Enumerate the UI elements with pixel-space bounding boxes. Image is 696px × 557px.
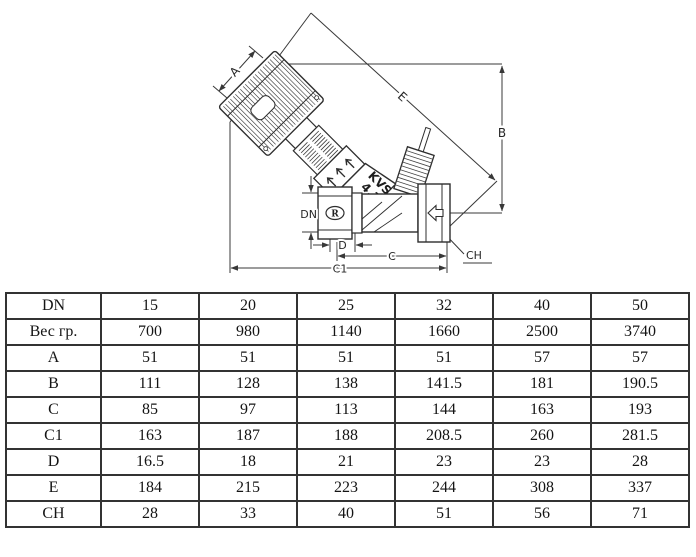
- drain-valve-stem: [418, 127, 430, 151]
- dim-label-dn: DN: [300, 208, 317, 221]
- table-cell: 208.5: [395, 423, 493, 449]
- table-cell: 51: [395, 501, 493, 527]
- table-cell: 215: [199, 475, 297, 501]
- table-cell: 144: [395, 397, 493, 423]
- table-row-e: E 184 215 223 244 308 337: [6, 475, 689, 501]
- table-cell: 260: [493, 423, 591, 449]
- table-cell: 1140: [297, 319, 395, 345]
- table-cell: 97: [199, 397, 297, 423]
- dimensions-table: DN 15 20 25 32 40 50 Вес гр. 700 980 114…: [5, 292, 690, 528]
- table-cell: 2500: [493, 319, 591, 345]
- table-row-c: C 85 97 113 144 163 193: [6, 397, 689, 423]
- table-cell: 40: [493, 293, 591, 319]
- row-label: C1: [6, 423, 101, 449]
- dim-label-a: A: [227, 63, 243, 79]
- row-label: Вес гр.: [6, 319, 101, 345]
- table-cell: 308: [493, 475, 591, 501]
- table-cell: 28: [591, 449, 689, 475]
- table-row-a: A 51 51 51 51 57 57: [6, 345, 689, 371]
- table-cell: 113: [297, 397, 395, 423]
- table-cell: 21: [297, 449, 395, 475]
- table-cell: 28: [101, 501, 199, 527]
- valve-technical-drawing: KVS 4,1 R A: [0, 0, 696, 292]
- row-label: B: [6, 371, 101, 397]
- brand-logo-letter: R: [331, 210, 339, 220]
- page: KVS 4,1 R A: [0, 0, 696, 557]
- table-cell: 25: [297, 293, 395, 319]
- table-cell: 56: [493, 501, 591, 527]
- table-cell: 193: [591, 397, 689, 423]
- table-cell: 1660: [395, 319, 493, 345]
- table-cell: 33: [199, 501, 297, 527]
- table-row-d: D 16.5 18 21 23 23 28: [6, 449, 689, 475]
- table-cell: 23: [493, 449, 591, 475]
- table-cell: 15: [101, 293, 199, 319]
- table-cell: 51: [297, 345, 395, 371]
- row-label: DN: [6, 293, 101, 319]
- table-cell: 18: [199, 449, 297, 475]
- table-cell: 184: [101, 475, 199, 501]
- dim-a-tick-1: [249, 46, 263, 58]
- table-cell: 57: [493, 345, 591, 371]
- table-cell: 190.5: [591, 371, 689, 397]
- table-cell: 40: [297, 501, 395, 527]
- row-label: A: [6, 345, 101, 371]
- table-cell: 163: [101, 423, 199, 449]
- dim-label-b: B: [498, 126, 506, 140]
- dim-label-d: D: [338, 239, 346, 252]
- table-row-b: B 111 128 138 141.5 181 190.5: [6, 371, 689, 397]
- row-label: CH: [6, 501, 101, 527]
- dim-rect-bottom-right-side: [448, 181, 497, 228]
- table-cell: 188: [297, 423, 395, 449]
- row-label: E: [6, 475, 101, 501]
- table-cell: 163: [493, 397, 591, 423]
- left-port-ring: [352, 193, 362, 233]
- table-cell: 223: [297, 475, 395, 501]
- dim-label-c1: C1: [333, 263, 348, 276]
- body-center: [362, 194, 418, 232]
- table-cell: 980: [199, 319, 297, 345]
- table-cell: 111: [101, 371, 199, 397]
- table-cell: 51: [199, 345, 297, 371]
- table-cell: 71: [591, 501, 689, 527]
- dim-label-c: C: [388, 250, 396, 263]
- table-cell: 700: [101, 319, 199, 345]
- table-cell: 3740: [591, 319, 689, 345]
- table-cell: 181: [493, 371, 591, 397]
- table-cell: 141.5: [395, 371, 493, 397]
- table-row-c1: C1 163 187 188 208.5 260 281.5: [6, 423, 689, 449]
- table-cell: 244: [395, 475, 493, 501]
- table-cell: 337: [591, 475, 689, 501]
- table-cell: 281.5: [591, 423, 689, 449]
- table-cell: 128: [199, 371, 297, 397]
- dim-a-tick-2: [213, 86, 227, 98]
- table-cell: 57: [591, 345, 689, 371]
- table-row-ch: CH 28 33 40 51 56 71: [6, 501, 689, 527]
- table-cell: 51: [395, 345, 493, 371]
- table-cell: 187: [199, 423, 297, 449]
- table-cell: 85: [101, 397, 199, 423]
- dim-label-ch: CH: [466, 249, 482, 262]
- table-row-weight: Вес гр. 700 980 1140 1660 2500 3740: [6, 319, 689, 345]
- table-cell: 51: [101, 345, 199, 371]
- dimensions-table-wrap: DN 15 20 25 32 40 50 Вес гр. 700 980 114…: [5, 292, 690, 528]
- table-cell: 23: [395, 449, 493, 475]
- table-cell: 138: [297, 371, 395, 397]
- row-label: D: [6, 449, 101, 475]
- table-cell: 32: [395, 293, 493, 319]
- table-cell: 20: [199, 293, 297, 319]
- table-row-dn: DN 15 20 25 32 40 50: [6, 293, 689, 319]
- table-cell: 16.5: [101, 449, 199, 475]
- table-cell: 50: [591, 293, 689, 319]
- row-label: C: [6, 397, 101, 423]
